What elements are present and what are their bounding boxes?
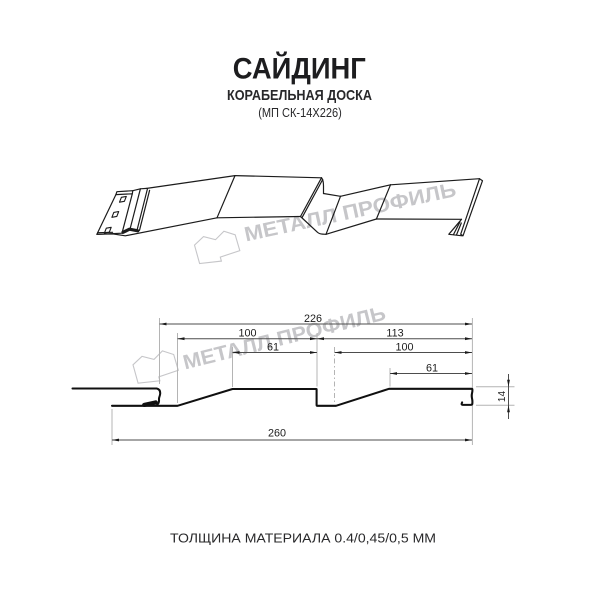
svg-text:ТОЛЩИНА МАТЕРИАЛА 0.4/0,45/0,5: ТОЛЩИНА МАТЕРИАЛА 0.4/0,45/0,5 ММ [170, 532, 436, 546]
svg-text:МЕТАЛЛ ПРОФИЛЬ: МЕТАЛЛ ПРОФИЛЬ [242, 178, 458, 246]
svg-text:226: 226 [304, 313, 322, 325]
svg-text:61: 61 [267, 342, 279, 354]
svg-text:61: 61 [426, 363, 438, 375]
svg-text:100: 100 [238, 328, 256, 340]
svg-text:(МП СК-14Х226): (МП СК-14Х226) [258, 106, 342, 120]
svg-text:14: 14 [497, 391, 508, 403]
svg-text:КОРАБЕЛЬНАЯ ДОСКА: КОРАБЕЛЬНАЯ ДОСКА [227, 87, 372, 104]
svg-text:САЙДИНГ: САЙДИНГ [233, 52, 366, 86]
svg-text:МЕТАЛЛ ПРОФИЛЬ: МЕТАЛЛ ПРОФИЛЬ [181, 302, 388, 375]
svg-text:260: 260 [268, 428, 286, 440]
svg-text:100: 100 [395, 342, 413, 354]
svg-text:113: 113 [386, 328, 403, 340]
